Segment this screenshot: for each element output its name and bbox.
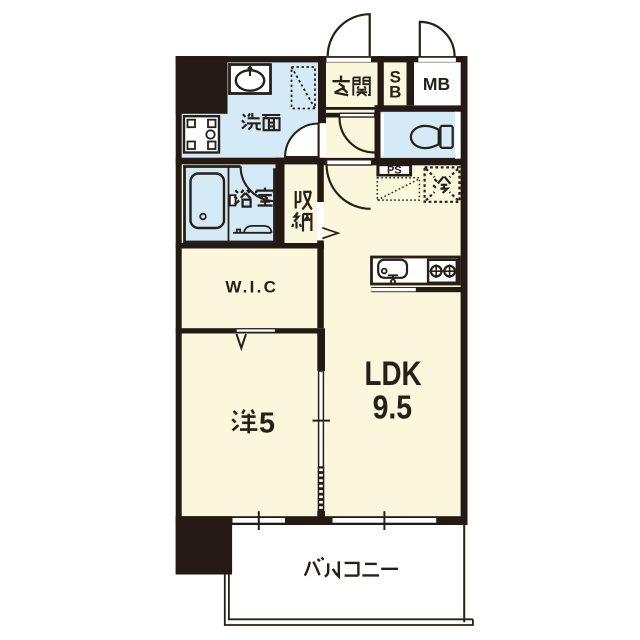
svg-text:5: 5 bbox=[259, 408, 275, 440]
svg-text:LDK: LDK bbox=[365, 355, 422, 393]
svg-text:9.5: 9.5 bbox=[373, 389, 413, 426]
svg-text:W.I.C: W.I.C bbox=[225, 277, 276, 296]
svg-text:MB: MB bbox=[423, 74, 450, 94]
svg-text:B: B bbox=[389, 82, 401, 101]
svg-text:PS: PS bbox=[387, 165, 402, 177]
